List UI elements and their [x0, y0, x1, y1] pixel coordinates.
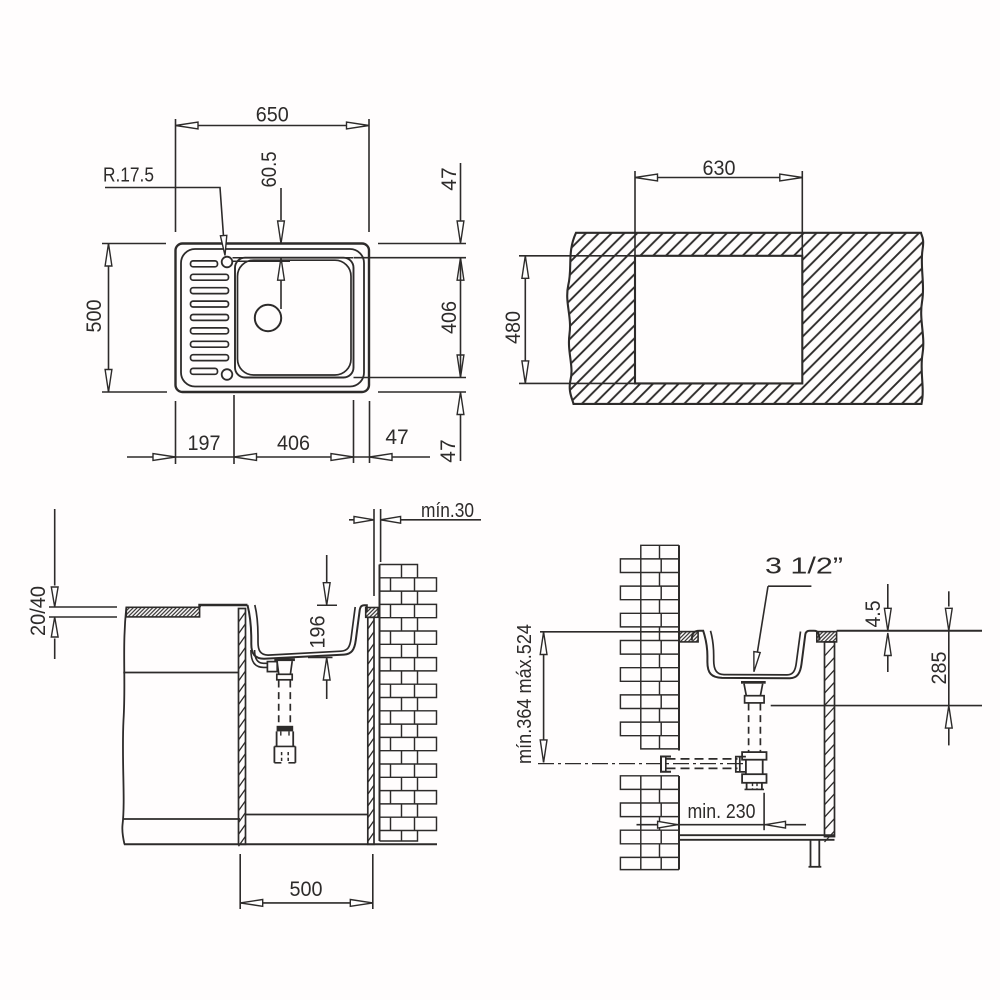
svg-text:650: 650 [256, 104, 289, 127]
svg-text:mín.30: mín.30 [421, 500, 474, 522]
svg-text:47: 47 [437, 439, 460, 462]
svg-text:60.5: 60.5 [258, 152, 281, 188]
svg-text:min. 230: min. 230 [688, 801, 756, 823]
svg-text:47: 47 [438, 167, 461, 190]
svg-text:4.5: 4.5 [862, 601, 885, 628]
svg-text:47: 47 [385, 426, 408, 449]
svg-text:R.17.5: R.17.5 [103, 165, 154, 187]
svg-text:500: 500 [290, 878, 323, 901]
svg-text:197: 197 [188, 432, 221, 455]
svg-text:mín.364 máx.524: mín.364 máx.524 [514, 624, 536, 764]
svg-text:630: 630 [703, 157, 736, 180]
svg-text:196: 196 [307, 616, 330, 649]
svg-text:480: 480 [502, 311, 525, 344]
svg-text:3 1/2”: 3 1/2” [765, 553, 843, 579]
svg-text:285: 285 [928, 652, 951, 685]
svg-text:406: 406 [438, 301, 461, 334]
svg-text:500: 500 [83, 300, 106, 333]
svg-text:406: 406 [277, 432, 310, 455]
svg-text:20/40: 20/40 [27, 586, 50, 636]
